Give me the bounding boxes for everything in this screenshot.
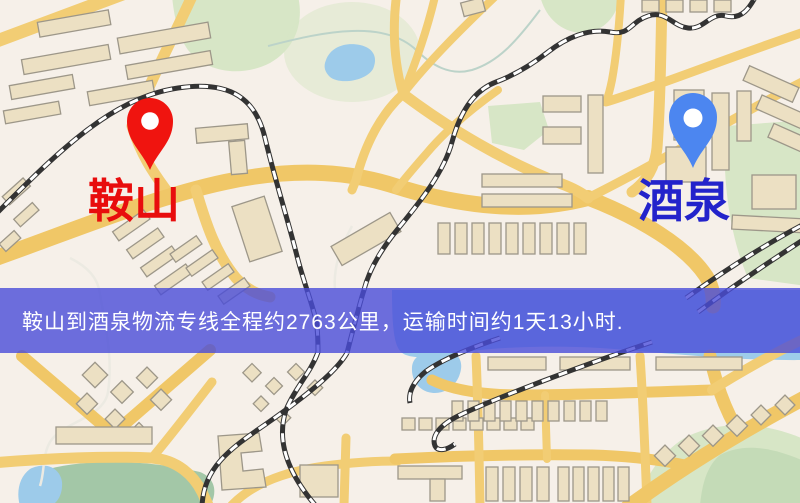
logistics-route-map: 鞍山 酒泉 鞍山到酒泉物流专线全程约2763公里，运输时间约1天13小时. <box>0 0 800 503</box>
pin-hole <box>684 109 703 128</box>
route-info-banner: 鞍山到酒泉物流专线全程约2763公里，运输时间约1天13小时. <box>0 288 800 353</box>
map-image: 鞍山 酒泉 <box>0 0 800 503</box>
origin-label: 鞍山 <box>88 176 180 227</box>
pin-hole <box>141 112 159 130</box>
destination-label: 酒泉 <box>638 176 730 227</box>
route-info-text: 鞍山到酒泉物流专线全程约2763公里，运输时间约1天13小时. <box>22 306 624 336</box>
